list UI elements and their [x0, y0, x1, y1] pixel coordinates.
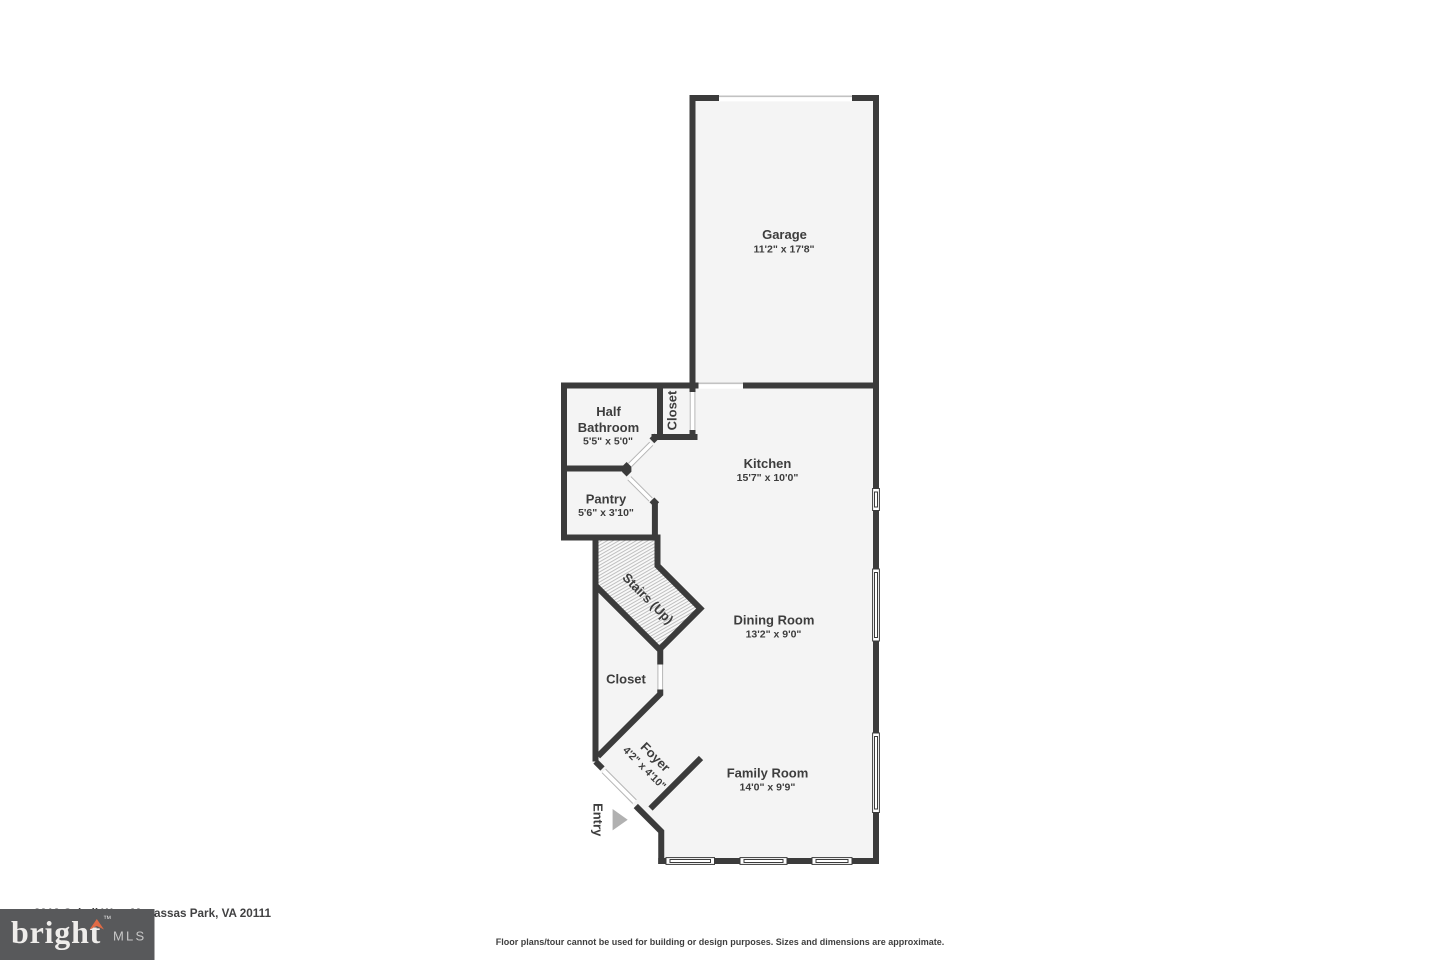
svg-text:15'7" x 10'0": 15'7" x 10'0": [737, 472, 799, 484]
svg-text:14'0" x 9'9": 14'0" x 9'9": [739, 782, 795, 794]
svg-text:Pantry: Pantry: [586, 492, 627, 507]
svg-text:Half: Half: [596, 404, 621, 419]
svg-text:Closet: Closet: [606, 672, 646, 687]
svg-text:Dining Room: Dining Room: [734, 613, 815, 628]
svg-text:MLS: MLS: [113, 929, 146, 944]
svg-text:5'5" x 5'0": 5'5" x 5'0": [583, 436, 633, 448]
svg-text:13'2" x 9'0": 13'2" x 9'0": [746, 629, 802, 641]
svg-text:™: ™: [103, 914, 112, 924]
svg-text:Bathroom: Bathroom: [578, 420, 639, 435]
svg-text:Kitchen: Kitchen: [744, 456, 792, 471]
svg-text:Family Room: Family Room: [727, 766, 809, 781]
svg-text:Entry: Entry: [591, 803, 606, 837]
svg-text:Garage: Garage: [762, 227, 807, 242]
svg-text:5'6" x 3'10": 5'6" x 3'10": [578, 507, 634, 519]
svg-text:11'2" x 17'8": 11'2" x 17'8": [753, 244, 814, 256]
svg-text:Floor plans/tour cannot be use: Floor plans/tour cannot be used for buil…: [496, 937, 945, 947]
svg-text:Closet: Closet: [665, 390, 680, 430]
